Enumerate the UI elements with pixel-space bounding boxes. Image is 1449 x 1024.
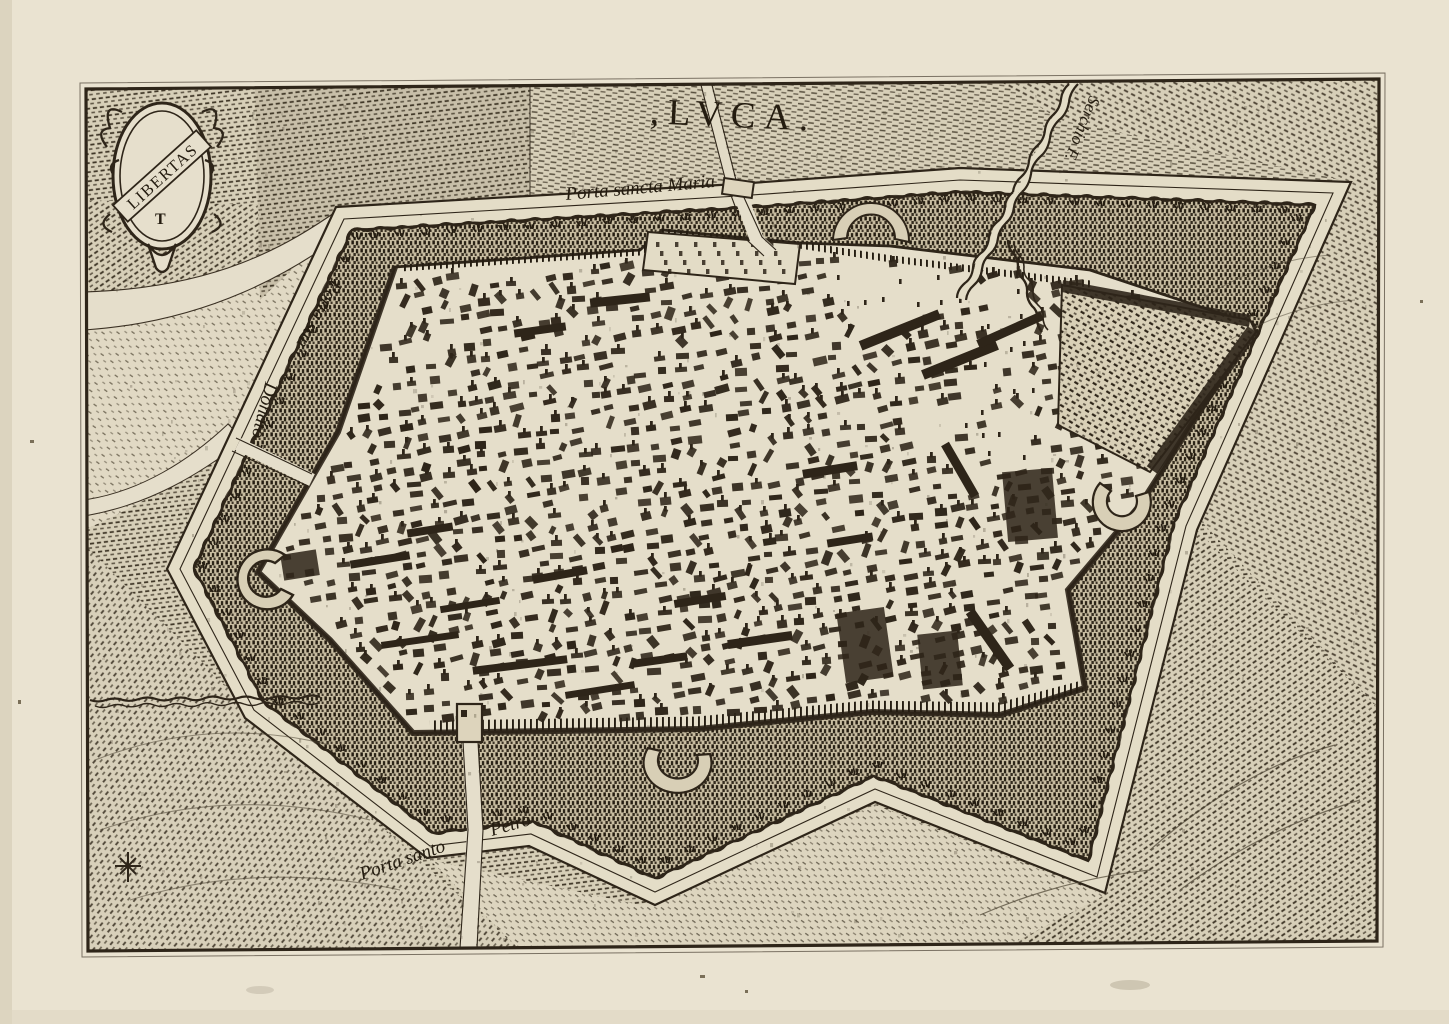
svg-text:,LVCA.: ,LVCA. bbox=[649, 91, 817, 139]
svg-text:T: T bbox=[155, 211, 166, 228]
